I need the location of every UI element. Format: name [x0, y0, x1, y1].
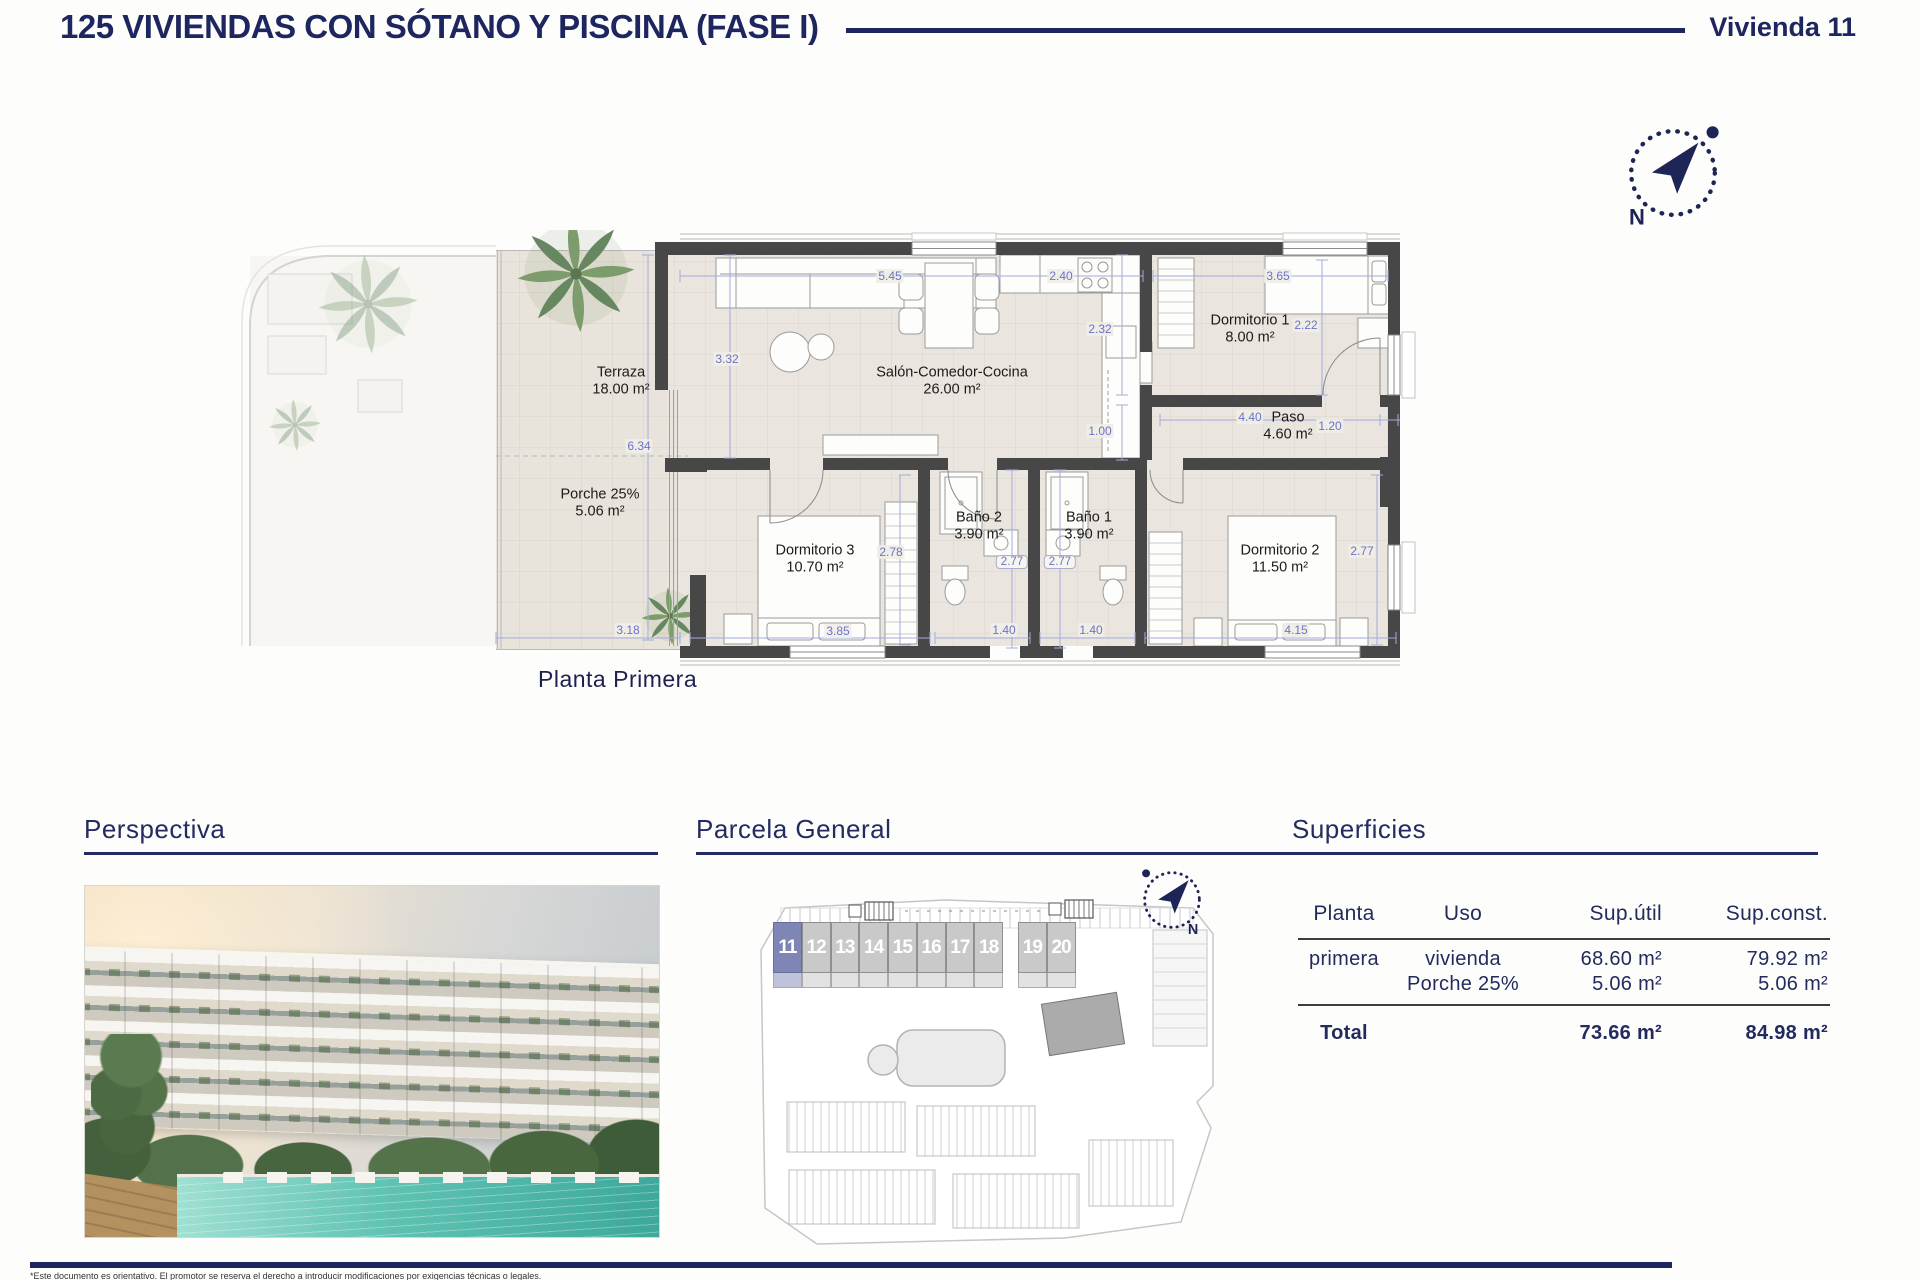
total-sup-const: 84.98 m² — [1684, 1014, 1830, 1045]
loungers-render — [223, 1172, 642, 1183]
col-header-sup-util: Sup.útil — [1536, 902, 1684, 930]
tree-render — [91, 1034, 171, 1184]
plan-sheet: 125 VIVIENDAS CON SÓTANO Y PISCINA (FASE… — [0, 0, 1920, 1280]
section-parcela: Parcela General — [696, 814, 1264, 1264]
section-superficies: Superficies Planta Uso Sup.útil Sup.cons… — [1258, 814, 1834, 1074]
north-compass-icon: N — [1136, 864, 1208, 936]
table-rule — [1298, 938, 1830, 940]
total-label: Total — [1298, 1014, 1390, 1045]
total-sup-util: 73.66 m² — [1536, 1014, 1684, 1045]
parcela-unit-19: 19 — [1018, 922, 1047, 973]
header: 125 VIVIENDAS CON SÓTANO Y PISCINA (FASE… — [60, 8, 1856, 46]
north-letter: N — [1629, 205, 1645, 228]
parcela-units-row: 11121314151617181920 — [773, 922, 1076, 973]
cell-sup-util: 68.60 m² — [1536, 948, 1684, 971]
pool-shape — [897, 1030, 1005, 1086]
parcela-balcony-19 — [1018, 973, 1047, 988]
footer-rule — [30, 1262, 1672, 1268]
parcela-unit-20: 20 — [1047, 922, 1076, 973]
parcela-balcony-20 — [1047, 973, 1076, 988]
parcela-unit-18: 18 — [974, 922, 1003, 973]
pool-render — [177, 1174, 659, 1237]
parcela-unit-16: 16 — [917, 922, 946, 973]
parcela-balcony-12 — [802, 973, 831, 988]
parcela-balcony-11 — [773, 973, 802, 988]
section-perspectiva: Perspectiva — [84, 814, 658, 1244]
cell-sup-const: 79.92 m² — [1684, 948, 1830, 971]
perspectiva-heading: Perspectiva — [84, 814, 225, 845]
north-compass-icon: N — [1618, 118, 1728, 228]
parcela-unit-15: 15 — [888, 922, 917, 973]
parcela-unit-13: 13 — [831, 922, 860, 973]
unit-label: Vivienda 11 — [1709, 12, 1856, 43]
parcela-underline — [696, 852, 1264, 855]
parcela-balcony-16 — [917, 973, 946, 988]
parcela-balcony-17 — [946, 973, 975, 988]
parcela-balcony-18 — [974, 973, 1003, 988]
superficies-heading: Superficies — [1292, 814, 1426, 845]
parcela-unit-17: 17 — [946, 922, 975, 973]
superficies-underline — [1258, 852, 1818, 855]
floor-plan-drawing — [240, 230, 1450, 680]
parcela-unit-11: 11 — [773, 922, 802, 973]
floor-plan: Terraza18.00 m²Porche 25%5.06 m²Salón-Co… — [240, 230, 1450, 696]
north-letter: N — [1188, 922, 1198, 936]
neighbour-plot — [242, 246, 496, 646]
header-rule — [846, 28, 1685, 33]
perspectiva-underline — [84, 852, 658, 855]
parcela-balcony-15 — [888, 973, 917, 988]
col-header-sup-const: Sup.const. — [1684, 902, 1830, 930]
parcela-balcony-13 — [831, 973, 860, 988]
cell-planta: primera — [1298, 948, 1390, 971]
page-title: 125 VIVIENDAS CON SÓTANO Y PISCINA (FASE… — [60, 8, 818, 46]
disclaimer-text: *Este documento es orientativo. El promo… — [30, 1271, 541, 1280]
floorplan-caption: Planta Primera — [538, 666, 697, 693]
cell-sup-const: 5.06 m² — [1684, 973, 1830, 996]
parcela-map: 11121314151617181920 — [745, 888, 1230, 1254]
col-header-uso: Uso — [1390, 902, 1536, 930]
table-rule — [1298, 1004, 1830, 1006]
col-header-planta: Planta — [1298, 902, 1390, 930]
perspectiva-render — [84, 885, 660, 1238]
parcela-unit-14: 14 — [859, 922, 888, 973]
parcela-heading: Parcela General — [696, 814, 891, 845]
parcela-balcony-row — [773, 973, 1076, 988]
cell-uso: vivienda — [1390, 948, 1536, 971]
superficies-table: Planta Uso Sup.útil Sup.const. primera v… — [1298, 902, 1830, 1045]
parcela-balcony-14 — [859, 973, 888, 988]
unit-gap — [1003, 922, 1018, 973]
cell-uso: Porche 25% — [1390, 973, 1536, 996]
cell-sup-util: 5.06 m² — [1536, 973, 1684, 996]
parcela-unit-12: 12 — [802, 922, 831, 973]
